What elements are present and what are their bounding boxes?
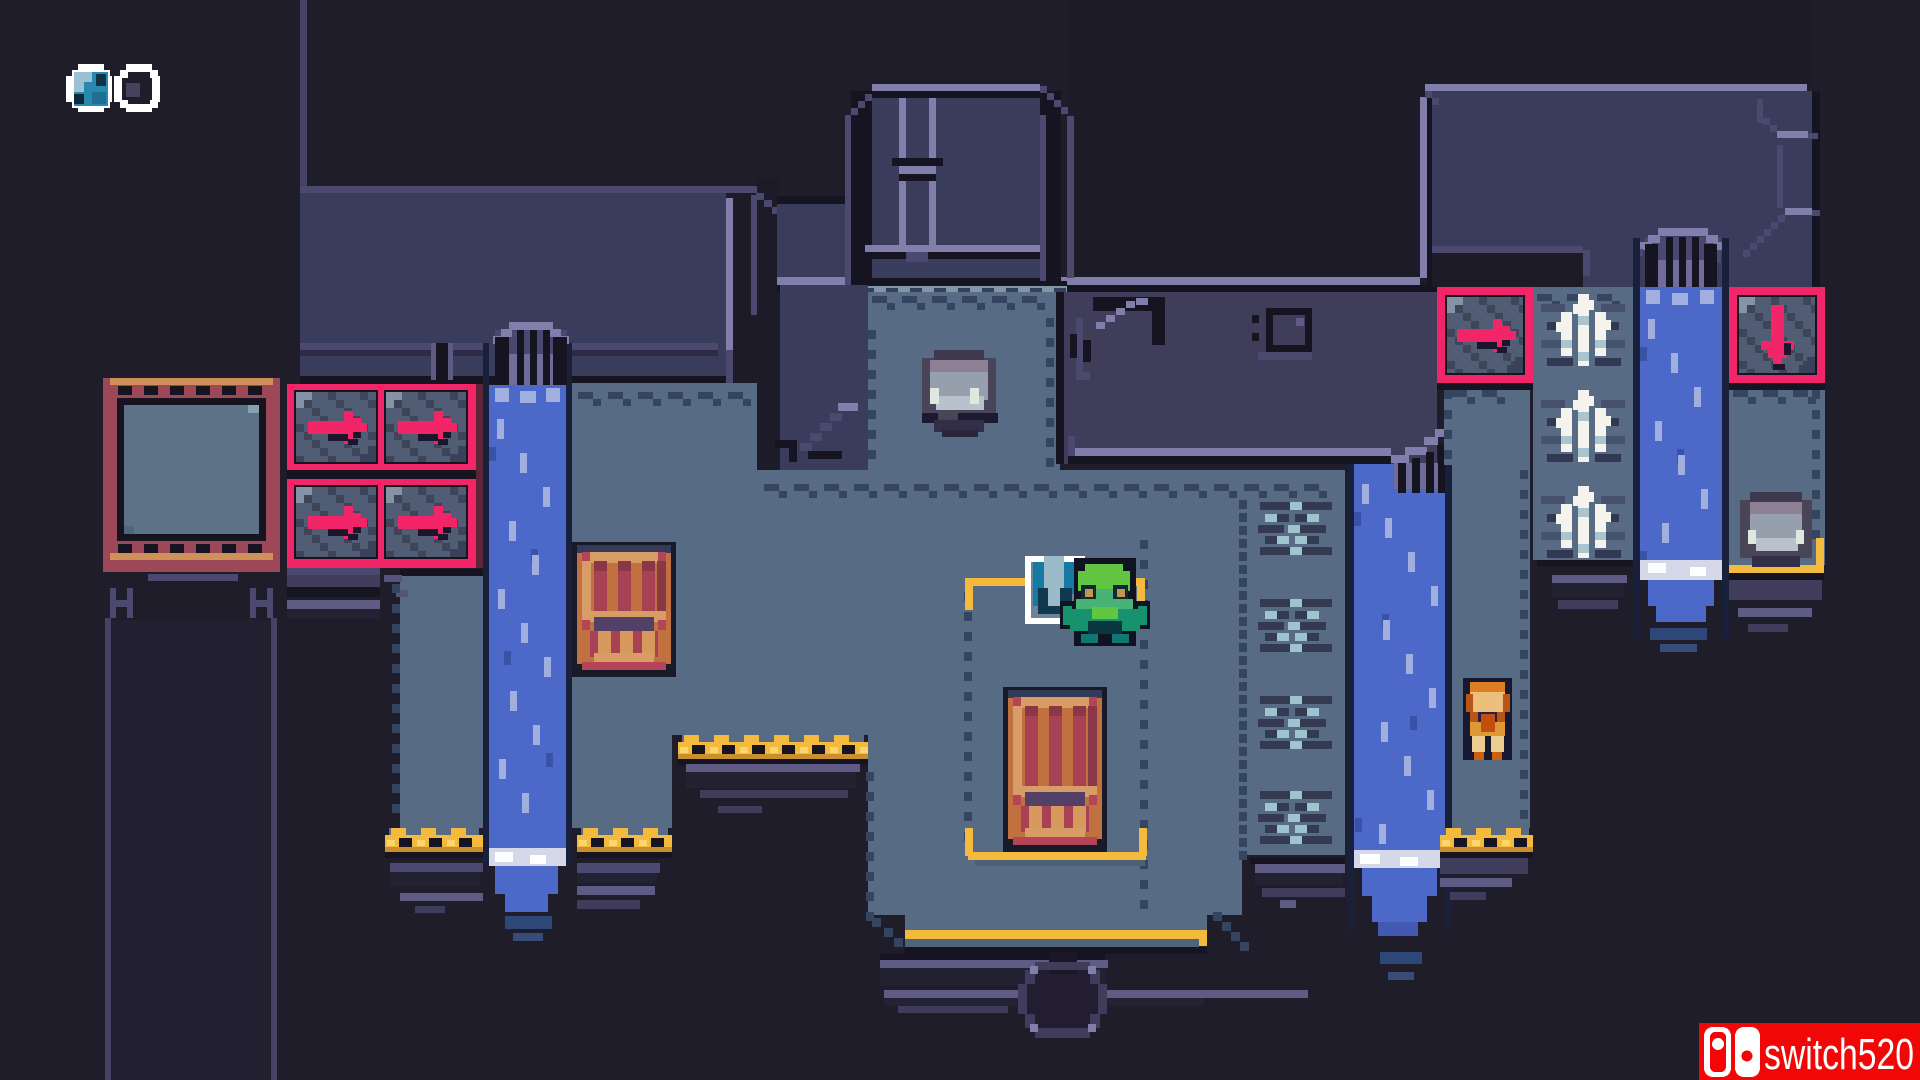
svg-text:switch520: switch520 bbox=[1764, 1030, 1914, 1079]
